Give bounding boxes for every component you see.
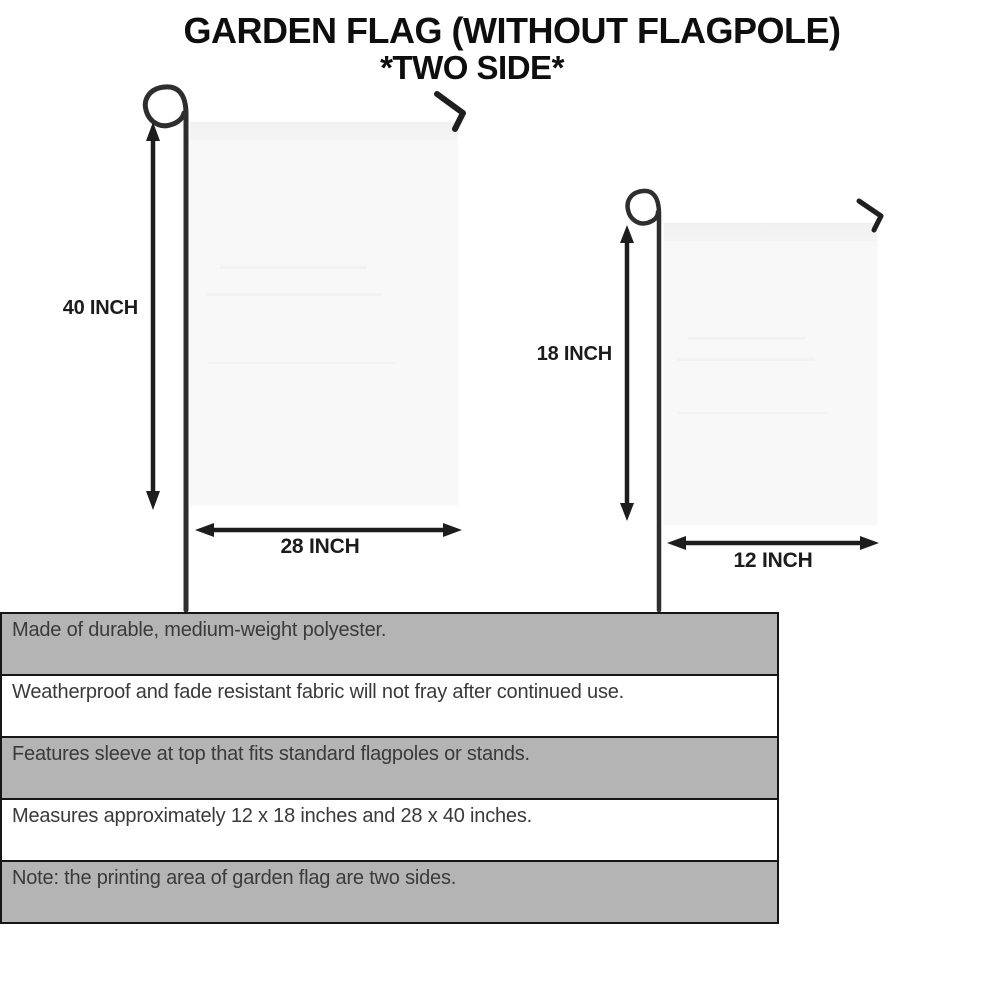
large-flag-hanger-hook bbox=[437, 94, 463, 129]
small-flag-hanger-hook bbox=[859, 201, 881, 230]
feature-table: Made of durable, medium-weight polyester… bbox=[0, 612, 779, 924]
feature-row-2: Weatherproof and fade resistant fabric w… bbox=[2, 676, 777, 738]
small-flagpole-rod-with-loop bbox=[628, 191, 659, 610]
feature-row-5: Note: the printing area of garden flag a… bbox=[2, 862, 777, 922]
small-flagpole bbox=[628, 191, 659, 610]
arrow-down-icon bbox=[146, 491, 160, 510]
small-flag-width-label: 12 INCH bbox=[673, 549, 873, 573]
hook-icon bbox=[859, 201, 881, 230]
small-flag-height-label: 18 INCH bbox=[512, 343, 612, 366]
feature-row-4: Measures approximately 12 x 18 inches an… bbox=[2, 800, 777, 862]
large-flag-height-label: 40 INCH bbox=[38, 297, 138, 320]
feature-row-1: Made of durable, medium-weight polyester… bbox=[2, 614, 777, 676]
small-flag-height-arrow bbox=[620, 225, 634, 521]
arrow-right-icon bbox=[443, 523, 462, 537]
arrow-down-icon bbox=[620, 503, 634, 521]
garden-flag-infographic: GARDEN FLAG (WITHOUT FLAGPOLE) *TWO SIDE… bbox=[0, 0, 1000, 1000]
arrow-right-icon bbox=[860, 536, 879, 550]
feature-row-3: Features sleeve at top that fits standar… bbox=[2, 738, 777, 800]
large-flag-width-label: 28 INCH bbox=[220, 535, 420, 559]
large-flag-height-arrow bbox=[146, 122, 160, 510]
arrow-left-icon bbox=[195, 523, 214, 537]
hook-icon bbox=[437, 94, 463, 129]
dimension-diagram bbox=[0, 0, 1000, 620]
arrow-left-icon bbox=[667, 536, 686, 550]
arrow-up-icon bbox=[620, 225, 634, 243]
small-flag-width-arrow bbox=[667, 536, 879, 550]
